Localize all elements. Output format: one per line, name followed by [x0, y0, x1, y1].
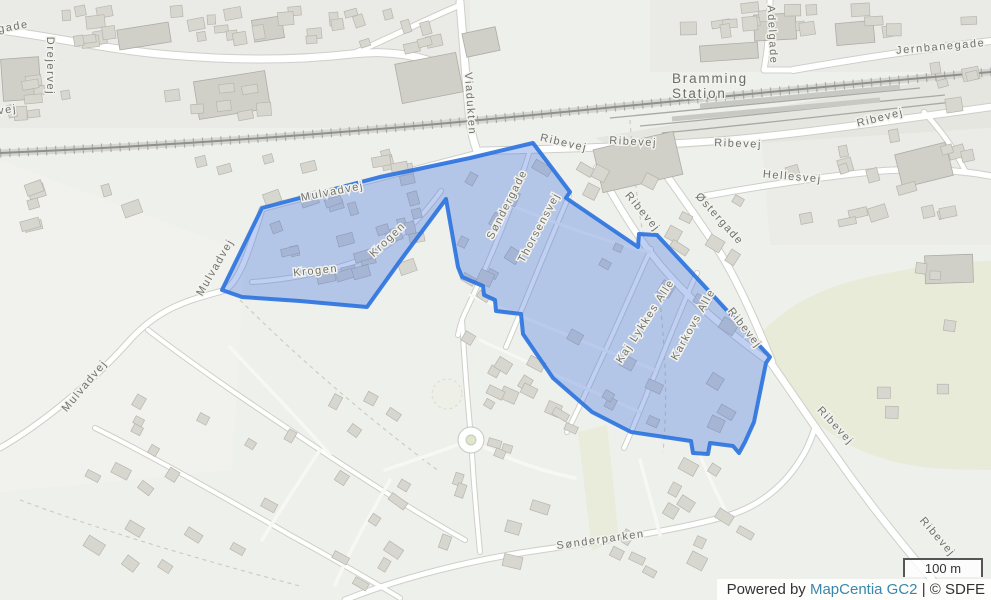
street-label: Ribevej [917, 515, 957, 559]
roundabout [458, 427, 484, 453]
base-map: gadevejDrejervejViaduktenJernbanegadeAde… [0, 0, 991, 600]
selection-polygon[interactable] [222, 143, 770, 454]
scale-bar-label: 100 m [925, 561, 961, 576]
street-label: Ribevej [609, 135, 657, 149]
attribution-copyright: | © SDFE [918, 581, 985, 598]
street-label: Ribevej [714, 137, 762, 151]
place-label: Station [672, 86, 727, 101]
attribution-bar: Powered by MapCentia GC2 | © SDFE [717, 579, 991, 600]
map-canvas[interactable]: gadevejDrejervejViaduktenJernbanegadeAde… [0, 0, 991, 600]
mapcentia-link[interactable]: MapCentia GC2 [810, 581, 918, 598]
place-label: Bramming [672, 71, 748, 86]
street-label: Drejervej [44, 37, 56, 95]
attribution-prefix: Powered by [727, 581, 810, 598]
scale-bar: 100 m [903, 558, 983, 577]
